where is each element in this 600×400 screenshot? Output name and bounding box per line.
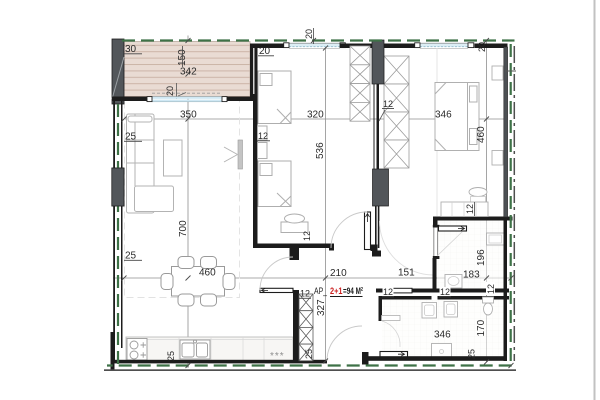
svg-text:12: 12 xyxy=(383,99,393,109)
svg-text:346: 346 xyxy=(435,110,452,121)
svg-text:183: 183 xyxy=(463,270,480,281)
svg-text:320: 320 xyxy=(307,110,324,121)
svg-text:346: 346 xyxy=(434,330,451,341)
svg-text:350: 350 xyxy=(180,110,197,121)
svg-text:12: 12 xyxy=(258,131,268,141)
svg-text:460: 460 xyxy=(476,126,487,143)
svg-text:12: 12 xyxy=(440,287,450,297)
svg-text:700: 700 xyxy=(178,220,189,237)
svg-text:196: 196 xyxy=(476,249,487,266)
svg-text:342: 342 xyxy=(180,67,197,78)
svg-text:12: 12 xyxy=(383,287,393,297)
svg-text:AP_: AP_ xyxy=(314,286,328,297)
svg-text:=94 М²: =94 М² xyxy=(343,286,363,297)
svg-text:151: 151 xyxy=(398,268,415,279)
svg-text:170: 170 xyxy=(476,319,487,336)
svg-text:25: 25 xyxy=(304,349,314,359)
svg-text:12: 12 xyxy=(486,284,496,294)
svg-text:12: 12 xyxy=(300,289,310,299)
svg-text:12: 12 xyxy=(302,231,312,241)
svg-text:12: 12 xyxy=(465,204,475,214)
svg-text:536: 536 xyxy=(315,142,326,159)
svg-text:210: 210 xyxy=(330,268,347,279)
svg-text:20: 20 xyxy=(304,29,314,39)
svg-text:327: 327 xyxy=(316,299,327,316)
svg-text:460: 460 xyxy=(199,268,216,279)
svg-text:20: 20 xyxy=(165,86,175,96)
svg-text:25: 25 xyxy=(166,351,176,361)
svg-text:25: 25 xyxy=(467,349,477,359)
svg-text:2+1: 2+1 xyxy=(330,286,343,297)
svg-text:20: 20 xyxy=(477,42,487,52)
